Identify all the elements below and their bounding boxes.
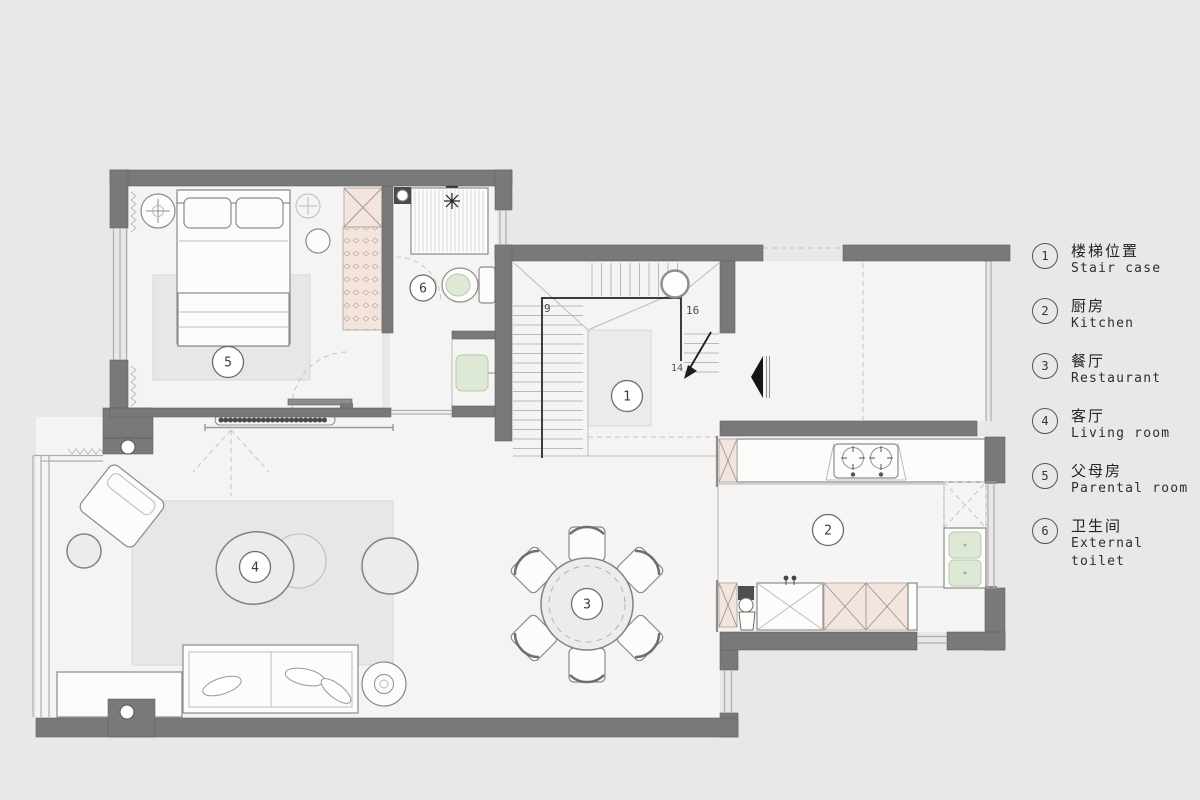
- legend: 1 楼梯位置 Stair case 2 厨房 Kitchen 3 餐厅 Rest…: [1032, 243, 1200, 591]
- stair-number-lower: 14: [671, 363, 683, 374]
- room-badge-staircase: 1: [612, 381, 643, 412]
- legend-number-badge: 4: [1032, 408, 1058, 434]
- sink-cabinet: [757, 576, 823, 630]
- cabinet-pink-small: [719, 583, 737, 627]
- legend-item-staircase: 1 楼梯位置 Stair case: [1032, 243, 1200, 278]
- double-sink: [944, 528, 986, 588]
- legend-label-zh: 卫生间: [1071, 518, 1200, 535]
- column: [662, 271, 689, 298]
- legend-number-badge: 5: [1032, 463, 1058, 489]
- mop-basin-drain: [739, 598, 753, 612]
- ceiling-light-icon: [296, 194, 320, 218]
- coffee-table-round: [362, 538, 418, 594]
- legend-label-en: Stair case: [1071, 260, 1161, 278]
- legend-label-en: Kitchen: [1071, 315, 1134, 333]
- svg-text:1: 1: [623, 390, 631, 405]
- gas-stove: [826, 443, 906, 480]
- room-badge-living: 4: [240, 552, 271, 583]
- legend-label-en: Restaurant: [1071, 370, 1161, 388]
- legend-label-en: Living room: [1071, 425, 1170, 443]
- legend-item-restaurant: 3 餐厅 Restaurant: [1032, 353, 1200, 388]
- stair-number-landing: 16: [686, 304, 699, 317]
- legend-item-parental-room: 5 父母房 Parental room: [1032, 463, 1200, 498]
- side-table: [67, 534, 101, 568]
- legend-item-external-toilet: 6 卫生间 External toilet: [1032, 518, 1200, 571]
- svg-text:3: 3: [583, 598, 591, 613]
- room-badge-dining: 3: [572, 589, 603, 620]
- stair-void: [588, 330, 651, 426]
- svg-text:6: 6: [419, 282, 427, 297]
- stair-number-start: 9: [544, 302, 551, 315]
- cabinet-pink-double: [824, 583, 908, 630]
- shower: [411, 184, 488, 254]
- svg-text:2: 2: [824, 524, 832, 539]
- legend-label-en: Parental room: [1071, 480, 1188, 498]
- dining-chair: [569, 648, 605, 682]
- legend-label-zh: 厨房: [1071, 298, 1134, 315]
- wardrobe: [343, 188, 382, 330]
- room-badge-kitchen: 2: [813, 515, 844, 546]
- legend-label-en: External toilet: [1071, 535, 1200, 571]
- legend-item-living-room: 4 客厅 Living room: [1032, 408, 1200, 443]
- legend-label-zh: 楼梯位置: [1071, 243, 1161, 260]
- toilet: [442, 267, 495, 303]
- legend-number-badge: 2: [1032, 298, 1058, 324]
- floorplan-drawing: 5: [0, 0, 1200, 800]
- svg-text:5: 5: [224, 356, 232, 371]
- room-badge-parental: 5: [213, 347, 244, 378]
- sofa: [183, 645, 358, 713]
- svg-text:4: 4: [251, 561, 259, 576]
- room-badge-toilet: 6: [410, 275, 436, 301]
- double-bed: [177, 190, 290, 346]
- legend-label-zh: 餐厅: [1071, 353, 1161, 370]
- nightstand-left: [141, 194, 175, 228]
- mop-basin: [739, 612, 755, 630]
- cabinet-pink: [719, 439, 737, 482]
- bedroom-stool: [306, 229, 330, 253]
- legend-number-badge: 1: [1032, 243, 1058, 269]
- washing-machine: [394, 187, 411, 204]
- legend-label-zh: 父母房: [1071, 463, 1188, 480]
- legend-number-badge: 6: [1032, 518, 1058, 544]
- floorplan-page: 5: [0, 0, 1200, 800]
- legend-item-kitchen: 2 厨房 Kitchen: [1032, 298, 1200, 333]
- legend-number-badge: 3: [1032, 353, 1058, 379]
- legend-label-zh: 客厅: [1071, 408, 1170, 425]
- shower-sprinkler-icon: [444, 193, 460, 209]
- dining-chair: [569, 527, 605, 561]
- sofa-side-table: [362, 662, 406, 706]
